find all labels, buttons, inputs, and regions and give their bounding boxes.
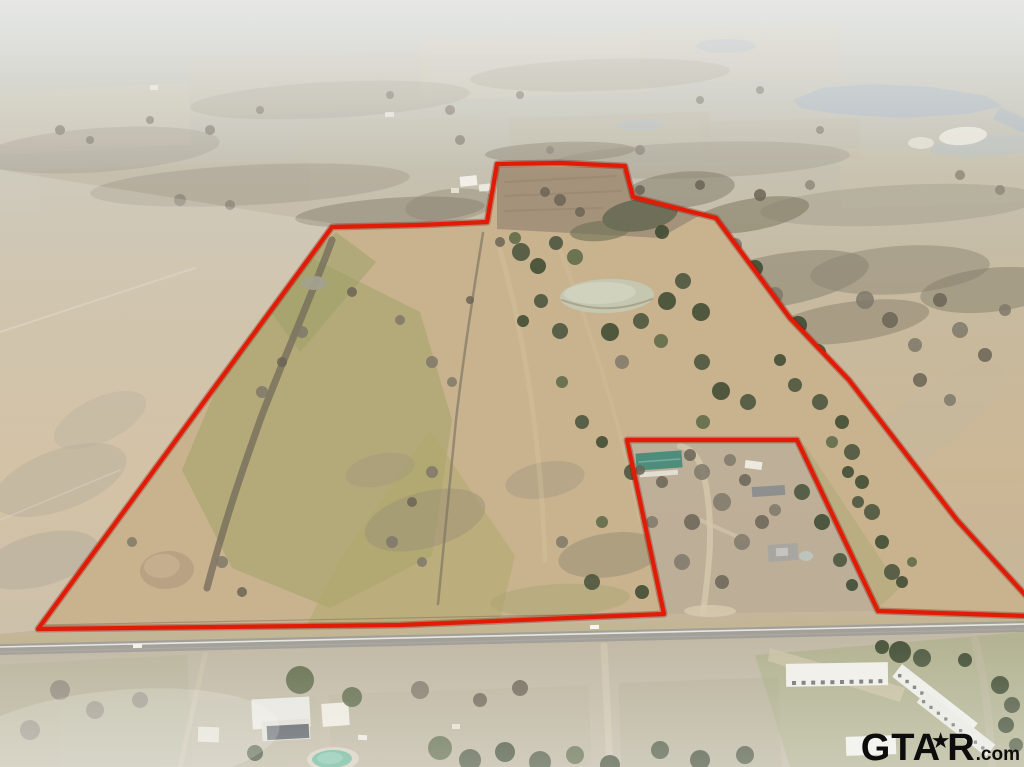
star-icon: ★ — [932, 732, 949, 751]
watermark-text-com: .com — [976, 745, 1020, 764]
watermark-text-gta: GTA — [861, 729, 941, 767]
watermark-logo: GTA ★ R .com — [861, 729, 1020, 767]
aerial-photo: GTA ★ R .com — [0, 0, 1024, 767]
aerial-photo-canvas — [0, 0, 1024, 767]
watermark-text-r: R — [947, 729, 975, 767]
haze-overlay-top — [0, 0, 1024, 175]
